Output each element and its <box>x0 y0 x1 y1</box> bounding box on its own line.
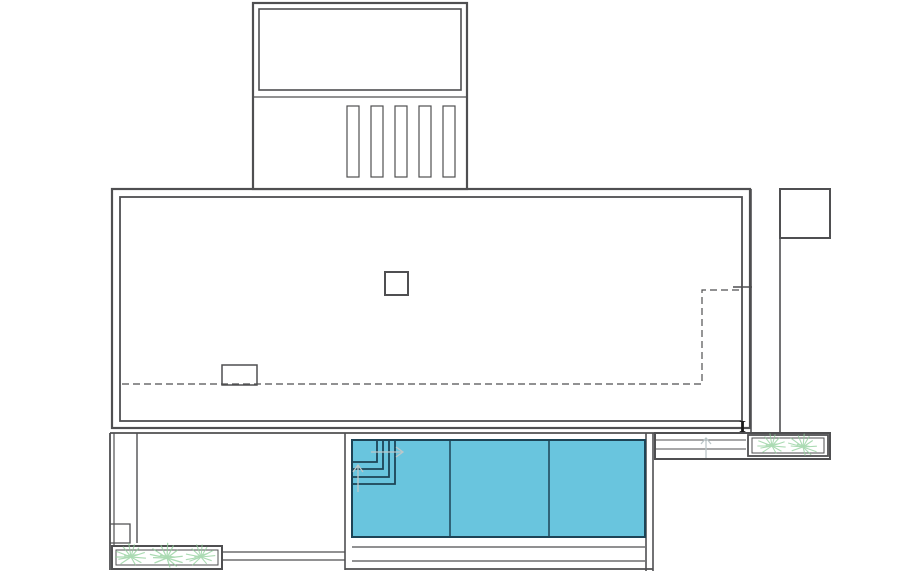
main-building-outline <box>112 189 750 428</box>
section-marker: I <box>739 418 746 436</box>
pool-water <box>352 440 645 537</box>
annex-box <box>780 189 830 238</box>
corner-closet <box>110 524 130 543</box>
wall-niche-box <box>222 365 257 385</box>
pavilion-outline <box>253 3 467 189</box>
floor-plan-canvas: I <box>0 0 900 581</box>
swimming-pool <box>352 440 645 537</box>
